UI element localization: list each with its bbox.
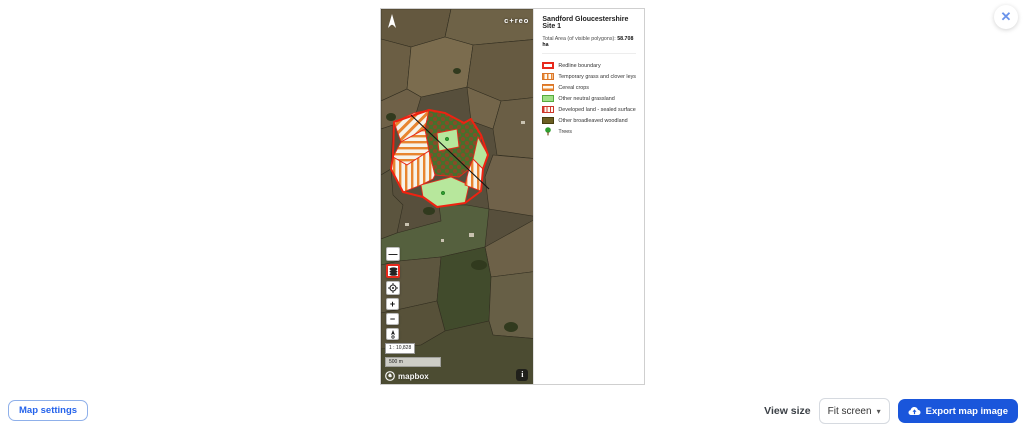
satellite-basemap-toggle-button[interactable] xyxy=(386,264,400,278)
view-size-dropdown[interactable]: Fit screen ▾ xyxy=(819,398,890,424)
north-arrow-icon xyxy=(385,13,399,31)
legend-item-neutral-grassland: Other neutral grassland xyxy=(542,93,636,104)
export-map-dialog: c+reo — xyxy=(0,0,1024,429)
mapbox-icon xyxy=(385,371,395,381)
cloud-export-icon xyxy=(908,406,921,416)
view-size-label: View size xyxy=(764,405,811,417)
export-button-label: Export map image xyxy=(926,406,1008,417)
developed-land-swatch xyxy=(542,106,554,113)
crosshair-icon xyxy=(388,283,398,293)
mapbox-attribution-logo[interactable]: mapbox xyxy=(385,371,429,381)
legend-item-redline: Redline boundary xyxy=(542,60,636,71)
plus-icon: + xyxy=(390,300,395,309)
dialog-footer: Map settings View size Fit screen ▾ Expo… xyxy=(0,398,1024,425)
geolocate-button[interactable] xyxy=(386,281,400,295)
map-scale-bar: 500 m xyxy=(385,357,441,367)
map-export-preview: c+reo — xyxy=(380,8,645,385)
legend-item-trees: Trees xyxy=(542,126,636,137)
cereal-crops-swatch xyxy=(542,84,554,91)
creo-watermark-logo: c+reo xyxy=(504,16,529,25)
mapbox-wordmark: mapbox xyxy=(398,372,429,381)
legend-item-temporary-grass: Temporary grass and clover leys xyxy=(542,71,636,82)
redline-swatch xyxy=(542,62,554,69)
compass-needle-icon xyxy=(389,330,397,339)
chevron-down-icon: ▾ xyxy=(877,407,881,416)
minus-icon: − xyxy=(390,315,395,324)
attribution-info-button[interactable]: i xyxy=(516,369,528,381)
collapse-controls-button[interactable]: — xyxy=(386,247,400,261)
compass-reset-button[interactable] xyxy=(386,328,399,340)
legend-item-cereal-crops: Cereal crops xyxy=(542,82,636,93)
view-size-value: Fit screen xyxy=(828,406,872,417)
footer-right-cluster: View size Fit screen ▾ Export map image xyxy=(764,398,1018,424)
legend-title: Sandford Gloucestershire Site 1 xyxy=(542,16,636,30)
zoom-in-button[interactable]: + xyxy=(386,298,399,310)
map-canvas[interactable]: c+reo — xyxy=(381,9,533,384)
legend-total-area: Total Area (of visible polygons): 58.708… xyxy=(542,36,636,54)
export-map-image-button[interactable]: Export map image xyxy=(898,399,1018,423)
close-icon: ✕ xyxy=(1001,9,1012,24)
broadleaved-woodland-swatch xyxy=(542,117,554,124)
map-controls: — xyxy=(386,247,400,340)
zoom-out-button[interactable]: − xyxy=(386,313,399,325)
collapse-icon: — xyxy=(389,250,398,259)
neutral-grassland-swatch xyxy=(542,95,554,102)
legend-item-developed-land: Developed land - sealed surface xyxy=(542,104,636,115)
temporary-grass-swatch xyxy=(542,73,554,80)
layers-icon xyxy=(389,267,398,276)
map-scale-ratio: 1 : 10,828 xyxy=(385,343,415,354)
map-legend-panel: Sandford Gloucestershire Site 1 Total Ar… xyxy=(533,9,644,384)
legend-item-broadleaved-woodland: Other broadleaved woodland xyxy=(542,115,636,126)
tree-icon xyxy=(542,128,554,135)
close-dialog-button[interactable]: ✕ xyxy=(994,5,1018,29)
map-settings-button[interactable]: Map settings xyxy=(8,400,88,421)
satellite-basemap-image xyxy=(381,9,533,384)
total-area-label: Total Area (of visible polygons): xyxy=(542,36,617,42)
